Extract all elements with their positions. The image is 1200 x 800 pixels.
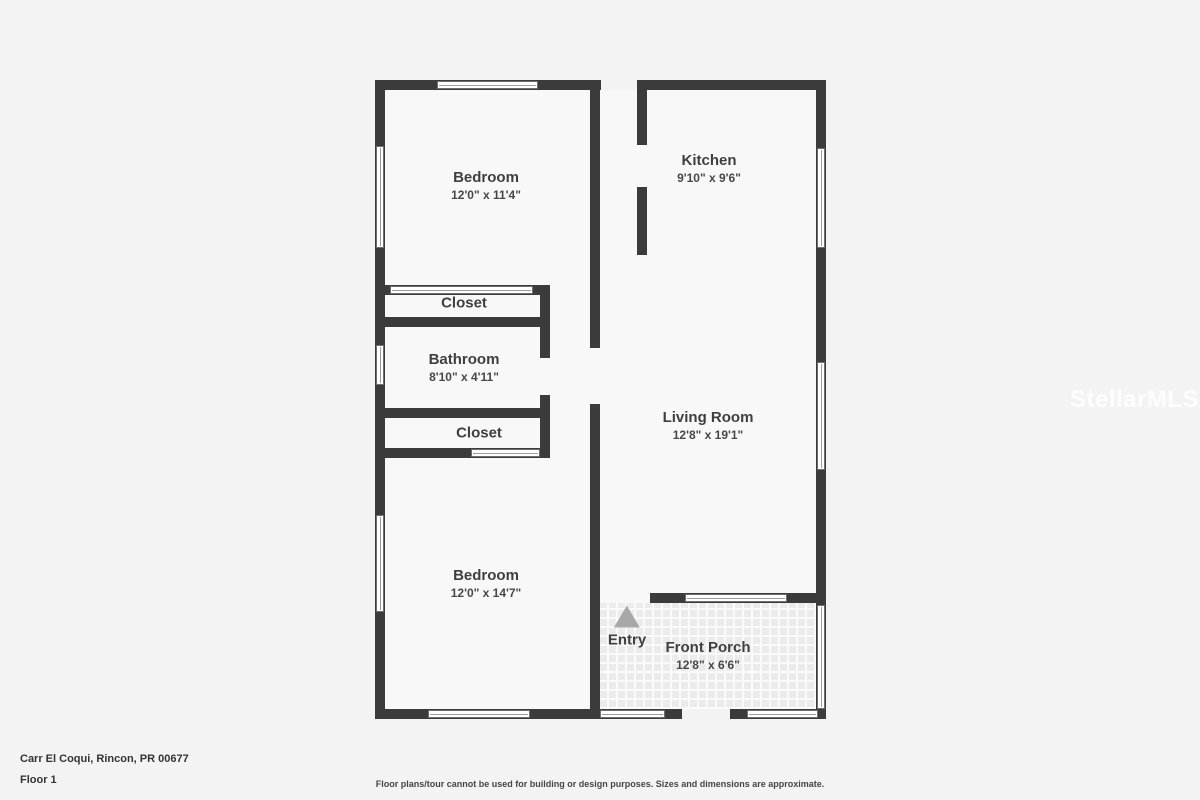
- floor-plan-page: Bedroom 12'0" x 11'4" Kitchen 9'10" x 9'…: [0, 0, 1200, 800]
- porch-railing-right: [817, 605, 825, 709]
- room-dimensions: 12'8" x 19'1": [663, 428, 754, 444]
- entry-arrow-icon: [614, 606, 640, 628]
- room-label-closet-2: Closet: [456, 425, 502, 444]
- room-label-bedroom-1: Bedroom 12'0" x 11'4": [451, 169, 521, 203]
- window-bedroom2-left: [376, 515, 384, 612]
- disclaimer-text: Floor plans/tour cannot be used for buil…: [376, 779, 825, 789]
- room-dimensions: 9'10" x 9'6": [677, 171, 741, 187]
- room-name: Bathroom: [429, 351, 500, 370]
- address-label: Carr El Coqui, Rincon, PR 00677: [20, 753, 189, 765]
- window-kitchen-right: [817, 148, 825, 248]
- room-name: Front Porch: [666, 639, 751, 658]
- room-name: Living Room: [663, 409, 754, 428]
- wall-kitchen-west-upper: [637, 87, 647, 145]
- porch-railing-bottom-left: [600, 710, 665, 718]
- floor-label: Floor 1: [20, 774, 57, 786]
- door-opening-bedroom2: [550, 448, 590, 458]
- room-label-bathroom: Bathroom 8'10" x 4'11": [429, 351, 500, 385]
- room-label-front-porch: Front Porch 12'8" x 6'6": [666, 639, 751, 673]
- window-bedroom1-left: [376, 146, 384, 248]
- wall-bathroom-bottom: [375, 408, 550, 418]
- room-label-bedroom-2: Bedroom 12'0" x 14'7": [451, 567, 521, 601]
- door-opening-bathroom: [540, 358, 550, 395]
- closet2-sliding-door: [471, 449, 540, 457]
- porch-railing-bottom-right: [747, 710, 818, 718]
- wall-central-upper: [590, 80, 600, 348]
- wall-kitchen-west-lower: [637, 187, 647, 255]
- room-dimensions: 12'0" x 11'4": [451, 188, 521, 204]
- door-opening-entry: [600, 593, 650, 603]
- room-name: Closet: [441, 295, 487, 314]
- closet1-sliding-door: [390, 286, 533, 294]
- entry-marker: Entry: [608, 606, 646, 649]
- entry-label: Entry: [608, 632, 646, 649]
- room-dimensions: 8'10" x 4'11": [429, 370, 500, 386]
- room-name: Kitchen: [677, 152, 741, 171]
- porch-steps-opening: [682, 709, 730, 719]
- window-livingroom-right: [817, 362, 825, 470]
- door-opening-back: [601, 80, 637, 90]
- wall-closet1-bottom: [375, 317, 550, 327]
- room-label-living-room: Living Room 12'8" x 19'1": [663, 409, 754, 443]
- room-label-kitchen: Kitchen 9'10" x 9'6": [677, 152, 741, 186]
- window-bedroom2-bottom: [428, 710, 530, 718]
- room-dimensions: 12'8" x 6'6": [666, 658, 751, 674]
- window-livingroom-south: [685, 594, 787, 602]
- window-bedroom1-top: [437, 81, 538, 89]
- room-label-closet-1: Closet: [441, 295, 487, 314]
- room-dimensions: 12'0" x 14'7": [451, 586, 521, 602]
- room-name: Bedroom: [451, 169, 521, 188]
- window-bathroom-left: [376, 345, 384, 385]
- room-name: Bedroom: [451, 567, 521, 586]
- room-name: Closet: [456, 425, 502, 444]
- stellar-mls-watermark: StellarMLS: [1070, 386, 1199, 414]
